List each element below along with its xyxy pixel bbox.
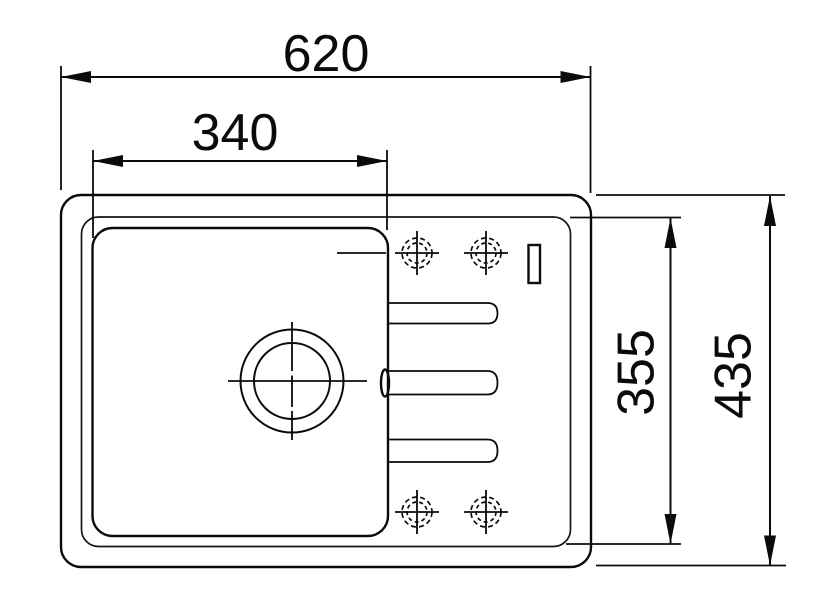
arrowhead-up xyxy=(665,218,677,248)
dimension-label-620: 620 xyxy=(283,25,370,83)
faucet-hole-crosshair xyxy=(464,231,508,275)
dimension-label-340: 340 xyxy=(192,104,279,162)
dimension-label-435: 435 xyxy=(705,332,763,419)
dimension-label-355: 355 xyxy=(608,329,666,416)
drainboard-groove xyxy=(387,371,498,395)
dimension-bowl-width: 340 xyxy=(93,104,387,238)
faucet-hole-top-right xyxy=(464,231,508,275)
bowl-overflow-notch xyxy=(381,370,389,397)
faucet-hole-crosshair xyxy=(395,231,439,275)
arrowhead-down xyxy=(764,536,776,566)
sink-dimension-drawing: 620 340 355 435 xyxy=(0,0,837,593)
faucet-hole-top-left xyxy=(395,231,439,275)
dimension-overall-width: 620 xyxy=(61,25,591,193)
drainboard-groove xyxy=(387,303,498,324)
drawing-canvas: 620 340 355 435 xyxy=(0,0,837,593)
arrowhead-up xyxy=(764,196,776,226)
arrowhead-left xyxy=(61,71,91,83)
arrowhead-left xyxy=(93,155,123,167)
arrowhead-down xyxy=(665,514,677,544)
faucet-hole-crosshair xyxy=(464,490,508,534)
dimension-inner-depth: 355 xyxy=(566,218,681,545)
overflow-slot xyxy=(529,245,541,283)
drainboard-groove xyxy=(387,440,498,463)
arrowhead-right xyxy=(561,71,591,83)
drain-hole xyxy=(228,322,367,440)
drainboard-grooves xyxy=(381,303,498,462)
faucet-hole-bottom-left xyxy=(395,490,439,534)
arrowhead-right xyxy=(357,155,387,167)
faucet-hole-bottom-right xyxy=(464,490,508,534)
faucet-hole-crosshair xyxy=(395,490,439,534)
faucet-holes xyxy=(337,231,540,534)
